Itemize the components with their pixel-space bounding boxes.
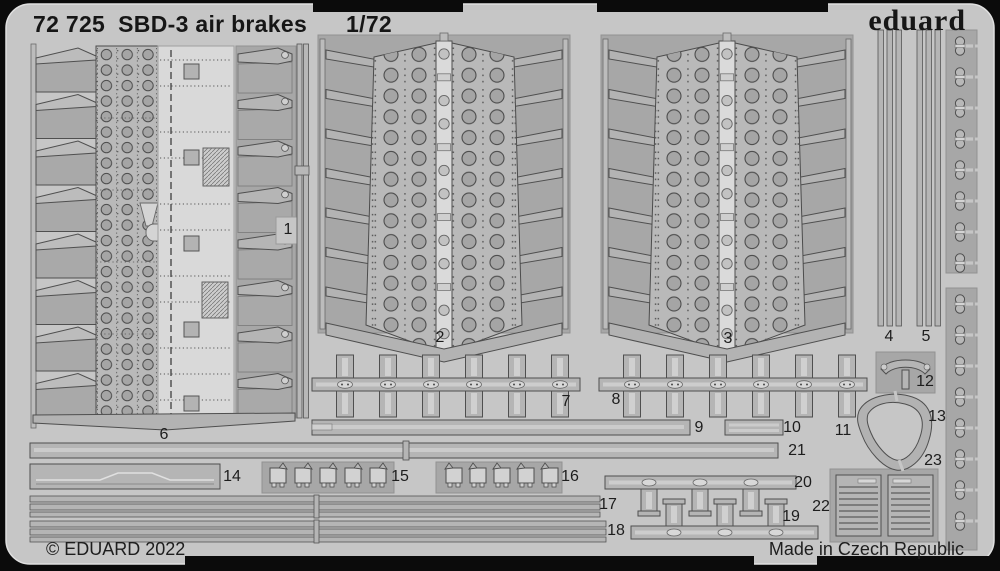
- part-17-strips: [30, 495, 600, 518]
- part-label-11: 11: [835, 423, 852, 439]
- part-label-17: 17: [599, 497, 617, 513]
- part-label-15: 15: [391, 469, 409, 485]
- part-label-10: 10: [783, 420, 801, 436]
- part-2-air-brake-panel: [318, 33, 570, 362]
- part-3-air-brake-panel: [601, 33, 853, 362]
- made-in: Made in Czech Republic: [769, 539, 964, 560]
- header-title-block: 72 725 SBD-3 air brakes 1/72: [33, 11, 392, 38]
- catalog-number: 72 725: [33, 11, 105, 38]
- part-4-strips: [878, 30, 902, 326]
- part-label-3: 3: [724, 331, 733, 347]
- part-21-strip: [30, 441, 778, 460]
- part-label-19: 19: [782, 509, 800, 525]
- copyright: © EDUARD 2022: [46, 539, 185, 560]
- part-label-23: 23: [924, 453, 942, 469]
- part-label-18: 18: [607, 523, 625, 539]
- part-10-strip: [725, 420, 783, 435]
- pe-fret-product-image: 72 725 SBD-3 air brakes 1/72 eduard © ED…: [0, 0, 1000, 571]
- scale-label: 1/72: [346, 11, 392, 38]
- product-title: SBD-3 air brakes: [118, 11, 307, 38]
- part-label-4: 4: [885, 329, 894, 345]
- part-14-strip: [30, 464, 220, 489]
- part-22-grilles: [830, 469, 938, 542]
- part-label-7: 7: [562, 394, 571, 410]
- part-label-16: 16: [561, 469, 579, 485]
- part-label-6: 6: [160, 427, 169, 443]
- part-label-21: 21: [788, 443, 806, 459]
- brand-logo: eduard: [868, 4, 966, 38]
- part-label-22: 22: [812, 499, 830, 515]
- pe-sheet: [0, 0, 1000, 571]
- part-label-8: 8: [612, 392, 621, 408]
- part-5-strips: [917, 30, 941, 326]
- part-label-14: 14: [223, 469, 241, 485]
- part-9-strip: [312, 420, 690, 435]
- part-label-13: 13: [928, 409, 946, 425]
- part-label-5: 5: [922, 329, 931, 345]
- part-label-9: 9: [695, 420, 704, 436]
- part-label-12: 12: [916, 374, 934, 390]
- part-16-clips: [436, 462, 562, 493]
- part-label-20: 20: [794, 475, 812, 491]
- part-label-2: 2: [436, 330, 445, 346]
- part-label-1: 1: [284, 222, 293, 238]
- part-15-clips: [262, 462, 394, 493]
